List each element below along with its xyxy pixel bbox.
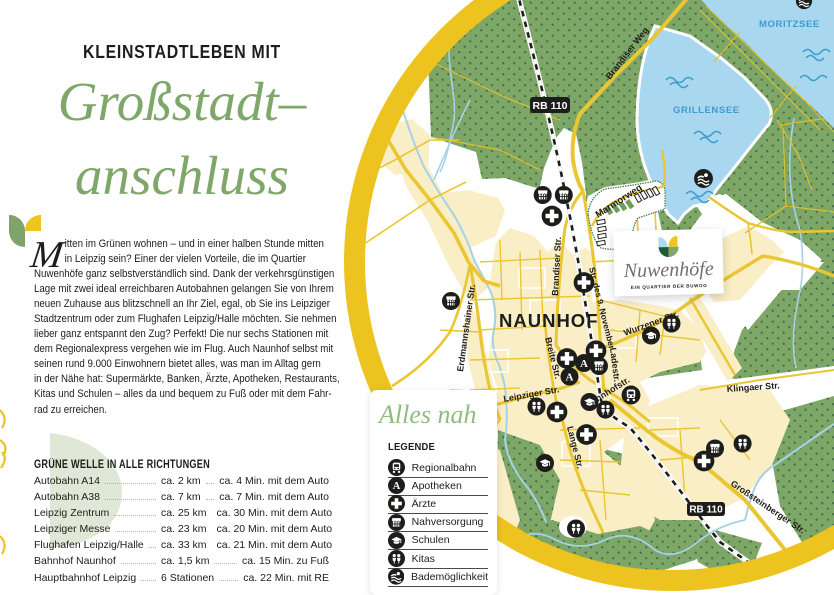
svg-text:Str.: Str.: [344, 377, 355, 392]
svg-text:MORITZSEE: MORITZSEE: [759, 19, 820, 30]
svg-text:GRILLENSEE: GRILLENSEE: [673, 105, 740, 116]
svg-text:RB 110: RB 110: [689, 505, 723, 516]
svg-text:NAUNHOF: NAUNHOF: [499, 310, 599, 331]
svg-text:RB 110: RB 110: [532, 100, 567, 112]
